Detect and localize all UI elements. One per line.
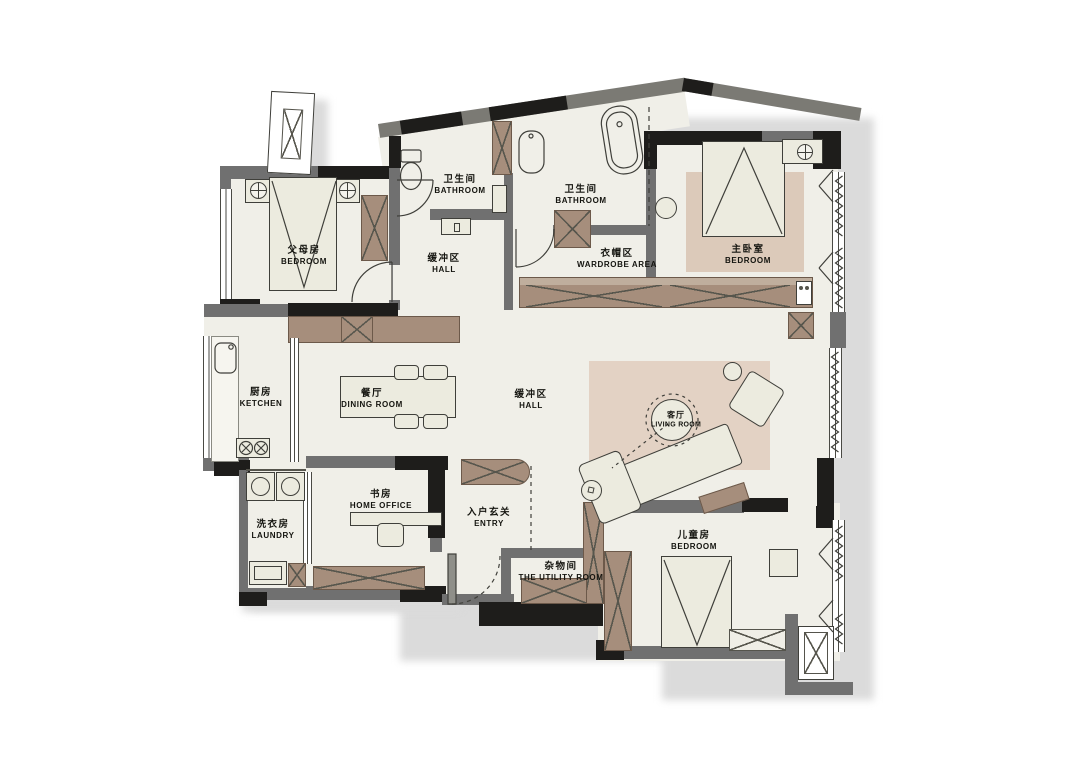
single-bed-kids	[661, 556, 732, 648]
label-zh: 书房	[350, 486, 412, 500]
cabinet-top-strip	[520, 278, 812, 285]
nightstand-lamp-icon	[339, 182, 356, 199]
laundry-basin	[249, 561, 287, 585]
wall	[204, 304, 292, 317]
wall	[428, 464, 445, 538]
wall	[742, 498, 788, 512]
duct-x-column	[492, 121, 512, 175]
room-label-wardrobe-area: 衣帽区 WARDROBE AREA	[577, 245, 657, 269]
label-zh: 卫生间	[555, 181, 606, 195]
flue-x	[281, 109, 304, 160]
label-zh: 杂物间	[518, 558, 603, 572]
label-en: HALL	[514, 401, 547, 410]
floor-plan-canvas: 父母房 BEDROOM 卫生间 BATHROOM 卫生间 BATHROOM 缓冲…	[0, 0, 1080, 763]
label-zh: 衣帽区	[577, 245, 657, 259]
shoe-cabinet	[461, 459, 530, 485]
wall	[389, 136, 401, 168]
bench-handle	[454, 223, 460, 232]
room-label-entry: 入户玄关 ENTRY	[467, 504, 511, 528]
wall	[504, 233, 513, 310]
label-en: BEDROOM	[725, 256, 771, 265]
label-zh: 客厅	[651, 410, 701, 421]
slanted-top-wall-right	[682, 78, 862, 121]
ac-unit-x	[804, 632, 828, 674]
room-label-bathroom-2: 卫生间 BATHROOM	[555, 181, 606, 205]
kitchen-counter	[211, 336, 239, 462]
washing-machine	[276, 472, 305, 501]
label-zh: 入户玄关	[467, 504, 511, 518]
wall	[288, 303, 398, 316]
room-label-dining-room: 餐厅 DINING ROOM	[341, 385, 403, 409]
label-en: DINING ROOM	[341, 400, 403, 409]
label-en: BEDROOM	[281, 257, 327, 266]
bathroom-cabinet	[492, 185, 507, 213]
wall-black-segment	[682, 78, 714, 96]
window-living-room	[829, 348, 842, 458]
gas-stove	[236, 438, 270, 458]
room-label-hall-upper: 缓冲区 HALL	[427, 250, 460, 274]
washer-drum	[281, 477, 300, 496]
washing-machine	[246, 472, 275, 501]
label-en: WARDROBE AREA	[577, 260, 657, 269]
sliding-door-kitchen	[290, 338, 299, 462]
wall	[785, 682, 853, 695]
flue-shaft	[267, 91, 315, 175]
label-en: BATHROOM	[434, 186, 485, 195]
room-label-hall-center: 缓冲区 HALL	[514, 386, 547, 410]
label-zh: 父母房	[281, 242, 327, 256]
lamp-square	[587, 486, 594, 493]
room-label-home-office: 书房 HOME OFFICE	[350, 486, 412, 510]
room-label-master-bedroom: 主卧室 BEDROOM	[725, 241, 771, 265]
cabinet-end-box	[796, 281, 812, 305]
hall-bench	[441, 218, 471, 235]
laundry-counter-line	[246, 469, 306, 471]
dining-chair	[394, 414, 419, 429]
wardrobe-long-cabinet	[519, 277, 813, 308]
office-cabinet	[313, 566, 425, 590]
washer-drum	[251, 477, 270, 496]
room-label-living-room: 客厅 LIVING ROOM	[651, 410, 701, 429]
stool	[655, 197, 677, 219]
label-zh: 主卧室	[725, 241, 771, 255]
label-en: BEDROOM	[671, 542, 717, 551]
wall	[220, 179, 231, 189]
nightstand-lamp-icon	[797, 144, 813, 160]
kids-low-cabinet	[729, 629, 786, 651]
dining-sideboard	[288, 316, 460, 343]
ac-unit-niche	[798, 626, 834, 680]
side-table	[723, 362, 742, 381]
wardrobe-kids	[604, 551, 632, 651]
cabinet-x-doors	[670, 285, 790, 307]
handle-dot	[805, 286, 809, 290]
label-zh: 卫生间	[434, 171, 485, 185]
label-zh: 洗衣房	[251, 516, 294, 530]
room-label-parents-bedroom: 父母房 BEDROOM	[281, 242, 327, 266]
double-bed-parents	[269, 177, 337, 291]
room-label-kitchen: 厨房 KETCHEN	[240, 384, 283, 408]
dining-chair	[394, 365, 419, 380]
label-zh: 餐厅	[341, 385, 403, 399]
double-bed-master	[702, 141, 785, 237]
dining-chair	[423, 414, 448, 429]
laundry-cabinet	[288, 563, 306, 587]
basin-inner	[254, 566, 282, 580]
label-en: KETCHEN	[240, 399, 283, 408]
label-zh: 儿童房	[671, 527, 717, 541]
label-zh: 缓冲区	[427, 250, 460, 264]
office-chair	[377, 523, 404, 547]
wardrobe-parents	[361, 195, 388, 261]
label-zh: 厨房	[240, 384, 283, 398]
cabinet-x	[788, 312, 814, 339]
floor-lamp	[581, 480, 602, 501]
room-label-laundry: 洗衣房 LAUNDRY	[251, 516, 294, 540]
room-label-utility-room: 杂物间 THE UTILITY ROOM	[518, 558, 603, 582]
label-en: HOME OFFICE	[350, 501, 412, 510]
label-en: LAUNDRY	[251, 531, 294, 540]
bathroom-storage-box	[554, 210, 591, 248]
label-zh: 缓冲区	[514, 386, 547, 400]
handle-dot	[799, 286, 803, 290]
nightstand-lamp-icon	[250, 182, 267, 199]
wall	[479, 602, 603, 626]
cabinet-x-panel	[341, 317, 373, 342]
wall	[501, 550, 511, 608]
label-en: HALL	[427, 265, 460, 274]
dining-chair	[423, 365, 448, 380]
label-en: THE UTILITY ROOM	[518, 573, 603, 582]
wall	[389, 168, 400, 265]
room-label-kids-bedroom: 儿童房 BEDROOM	[671, 527, 717, 551]
wall	[430, 538, 442, 552]
room-label-bathroom-1: 卫生间 BATHROOM	[434, 171, 485, 195]
label-en: LIVING ROOM	[651, 422, 701, 429]
label-en: BATHROOM	[555, 196, 606, 205]
label-en: ENTRY	[467, 519, 511, 528]
kids-desk	[769, 549, 798, 577]
wall	[239, 592, 267, 606]
window-parents-bedroom	[220, 189, 232, 299]
cabinet-x-doors	[526, 285, 662, 307]
wall	[830, 312, 846, 348]
window-master-bedroom	[832, 172, 845, 312]
